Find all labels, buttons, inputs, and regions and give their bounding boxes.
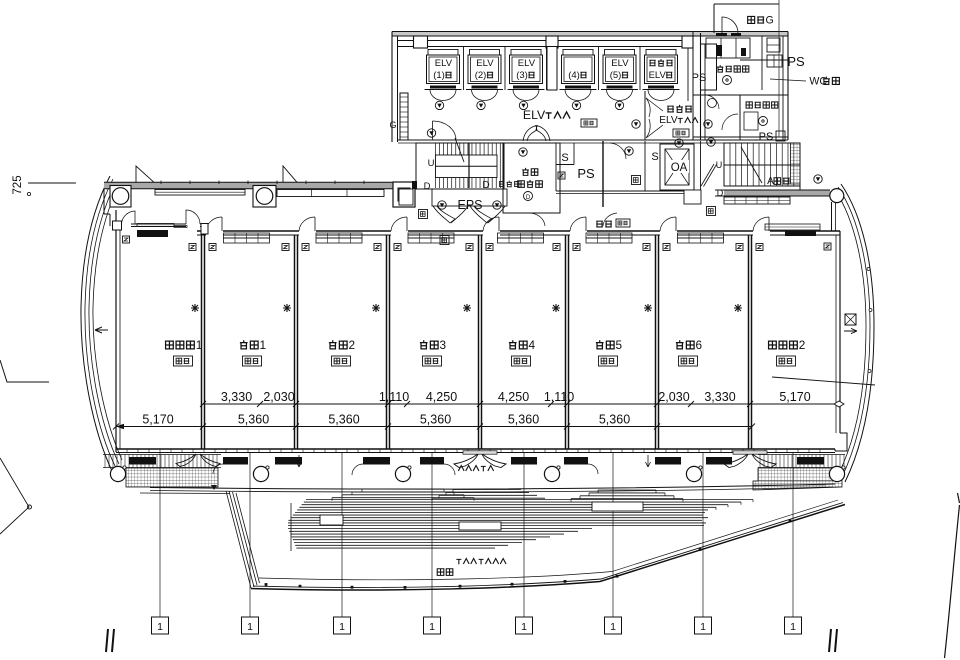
svg-text:4: 4 (529, 338, 536, 352)
svg-text:(5): (5) (610, 70, 622, 81)
svg-text:ELV: ELV (659, 115, 678, 126)
svg-text:1: 1 (339, 621, 345, 633)
svg-text:S: S (651, 151, 658, 163)
svg-text:(3): (3) (516, 70, 528, 81)
svg-text:PS: PS (787, 54, 805, 69)
svg-text:1: 1 (260, 338, 267, 352)
svg-text:PS: PS (759, 131, 774, 143)
svg-text:D: D (717, 188, 724, 198)
svg-text:A: A (767, 176, 774, 187)
svg-text:(2): (2) (475, 70, 487, 81)
svg-text:1,110: 1,110 (544, 390, 574, 404)
svg-text:5,360: 5,360 (238, 413, 269, 427)
svg-text:D: D (424, 181, 431, 192)
svg-text:1: 1 (610, 621, 616, 633)
svg-text:5,360: 5,360 (599, 413, 630, 427)
svg-text:S: S (561, 152, 568, 164)
svg-text:1: 1 (521, 621, 527, 633)
svg-text:1: 1 (790, 621, 796, 633)
svg-text:(4): (4) (568, 70, 580, 81)
svg-text:ELV: ELV (476, 58, 494, 69)
svg-text:6: 6 (696, 338, 703, 352)
svg-text:ELV: ELV (518, 58, 536, 69)
svg-text:5,170: 5,170 (142, 413, 173, 427)
svg-text:2: 2 (349, 338, 356, 352)
svg-text:EPS: EPS (457, 198, 482, 212)
svg-text:725: 725 (12, 175, 24, 194)
svg-text:3: 3 (440, 338, 447, 352)
svg-text:1: 1 (247, 621, 253, 633)
svg-text:5,360: 5,360 (328, 413, 359, 427)
svg-text:1,110: 1,110 (379, 390, 409, 404)
svg-text:5: 5 (616, 338, 623, 352)
svg-text:3,330: 3,330 (221, 390, 252, 404)
svg-text:4,250: 4,250 (426, 390, 457, 404)
svg-text:ELV: ELV (523, 108, 546, 122)
svg-text:G: G (389, 120, 396, 130)
svg-text:ELV: ELV (649, 70, 667, 81)
svg-text:1: 1 (429, 621, 435, 633)
svg-text:2,030: 2,030 (263, 390, 294, 404)
svg-text:1: 1 (157, 621, 163, 633)
svg-text:(1): (1) (433, 70, 445, 81)
svg-text:ELV: ELV (435, 58, 453, 69)
svg-text:PS: PS (692, 72, 707, 84)
svg-text:4,250: 4,250 (498, 390, 529, 404)
svg-text:3,330: 3,330 (704, 390, 735, 404)
svg-text:2,030: 2,030 (658, 390, 689, 404)
svg-text:1: 1 (700, 621, 706, 633)
svg-text:G: G (766, 14, 774, 26)
svg-text:U: U (428, 158, 435, 169)
svg-text:D: D (526, 195, 531, 201)
svg-text:ELV: ELV (611, 58, 629, 69)
svg-text:U: U (716, 160, 723, 170)
svg-text:5,170: 5,170 (779, 390, 810, 404)
svg-text:2: 2 (799, 338, 806, 352)
svg-text:5,360: 5,360 (508, 413, 539, 427)
svg-text:1: 1 (196, 338, 203, 352)
svg-text:OA: OA (671, 162, 688, 174)
svg-text:5,360: 5,360 (420, 413, 451, 427)
svg-text:PS: PS (577, 166, 595, 181)
